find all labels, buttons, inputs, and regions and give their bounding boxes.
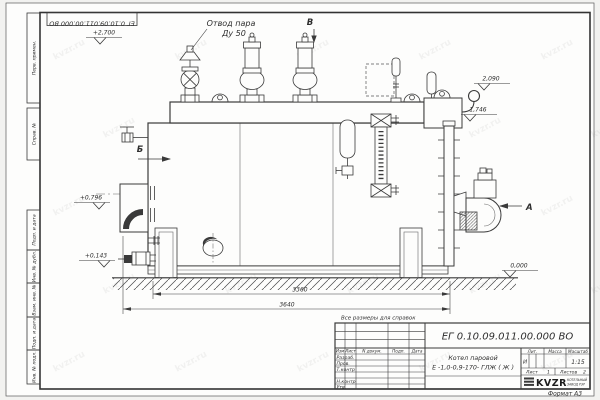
svg-text:3360: 3360 — [292, 287, 307, 294]
svg-text:3640: 3640 — [279, 302, 294, 309]
svg-text:Разраб.: Разраб. — [337, 355, 355, 361]
svg-text:Пров.: Пров. — [337, 361, 350, 367]
svg-text:+2,700: +2,700 — [93, 30, 115, 37]
logo-caption-1: КОТЕЛЬНЫЙ — [567, 377, 588, 382]
svg-text:2,090: 2,090 — [482, 76, 499, 83]
side-label: Взам. инв. № — [32, 284, 38, 315]
svg-text:Утв.: Утв. — [337, 384, 347, 390]
svg-text:1,746: 1,746 — [469, 107, 486, 114]
logo-caption-2: ЗАВОД РЭР — [567, 383, 585, 387]
svg-text:0,000: 0,000 — [510, 263, 527, 270]
svg-text:2: 2 — [583, 370, 586, 376]
svg-text:Изм: Изм — [336, 349, 345, 354]
logo-text: KVZR — [536, 378, 567, 389]
ground-hatch — [113, 278, 516, 290]
callout-line1: Отвод пара — [207, 19, 256, 28]
boiler-drawing-svg: kvzr.rukvzr.rukvzr.rukvzr.rukvzr.rukvzr.… — [0, 0, 600, 400]
svg-text:Лист: Лист — [525, 370, 538, 376]
svg-text:Масштаб: Масштаб — [568, 349, 588, 354]
svg-text:+0,796: +0,796 — [80, 195, 102, 202]
svg-text:Листов: Листов — [559, 370, 577, 376]
svg-text:1: 1 — [547, 370, 550, 376]
side-label: Справ. № — [32, 123, 38, 146]
svg-text:Т.контр: Т.контр — [337, 367, 356, 373]
doc-number: ЕГ 0.10.09.011.00.000 ВО — [442, 332, 574, 343]
drawing-sheet: kvzr.rukvzr.rukvzr.rukvzr.rukvzr.rukvzr.… — [0, 0, 600, 400]
svg-text:В: В — [307, 18, 313, 28]
side-label: Инв. № дубл. — [32, 251, 38, 282]
svg-text:Дата: Дата — [411, 349, 423, 354]
svg-text:Лист: Лист — [344, 349, 356, 354]
product-name-line1: Котел паровой — [448, 355, 497, 362]
svg-text:Н.контр: Н.контр — [337, 379, 356, 385]
svg-text:А: А — [525, 203, 533, 213]
scale-value: 1:15 — [571, 359, 585, 366]
svg-text:Подп.: Подп. — [392, 349, 405, 354]
side-label: Инв. № подл. — [32, 351, 38, 383]
reference-note: Все размеры для справок — [341, 316, 416, 322]
svg-text:Лит.: Лит. — [527, 349, 538, 354]
svg-text:Масса: Масса — [548, 349, 562, 354]
lit-value: И — [523, 360, 527, 366]
svg-text:+0,143: +0,143 — [85, 253, 107, 260]
side-label: Подп. и дата — [32, 214, 38, 245]
stamp-doc-number-rotated: ЕГ 0.10.09.011.00.000 ВО — [49, 20, 135, 28]
svg-text:N докум.: N докум. — [362, 349, 381, 354]
format-label: Формат А3 — [548, 390, 582, 397]
side-label: Перв. примен. — [32, 41, 38, 76]
callout-line2: Ду 50 — [221, 29, 246, 38]
svg-text:Б: Б — [137, 145, 144, 155]
side-label: Подп. и дата — [32, 318, 38, 349]
product-name-line2: Е -1,0-0,9-170- ГЛЖ ( Ж ) — [432, 365, 514, 372]
